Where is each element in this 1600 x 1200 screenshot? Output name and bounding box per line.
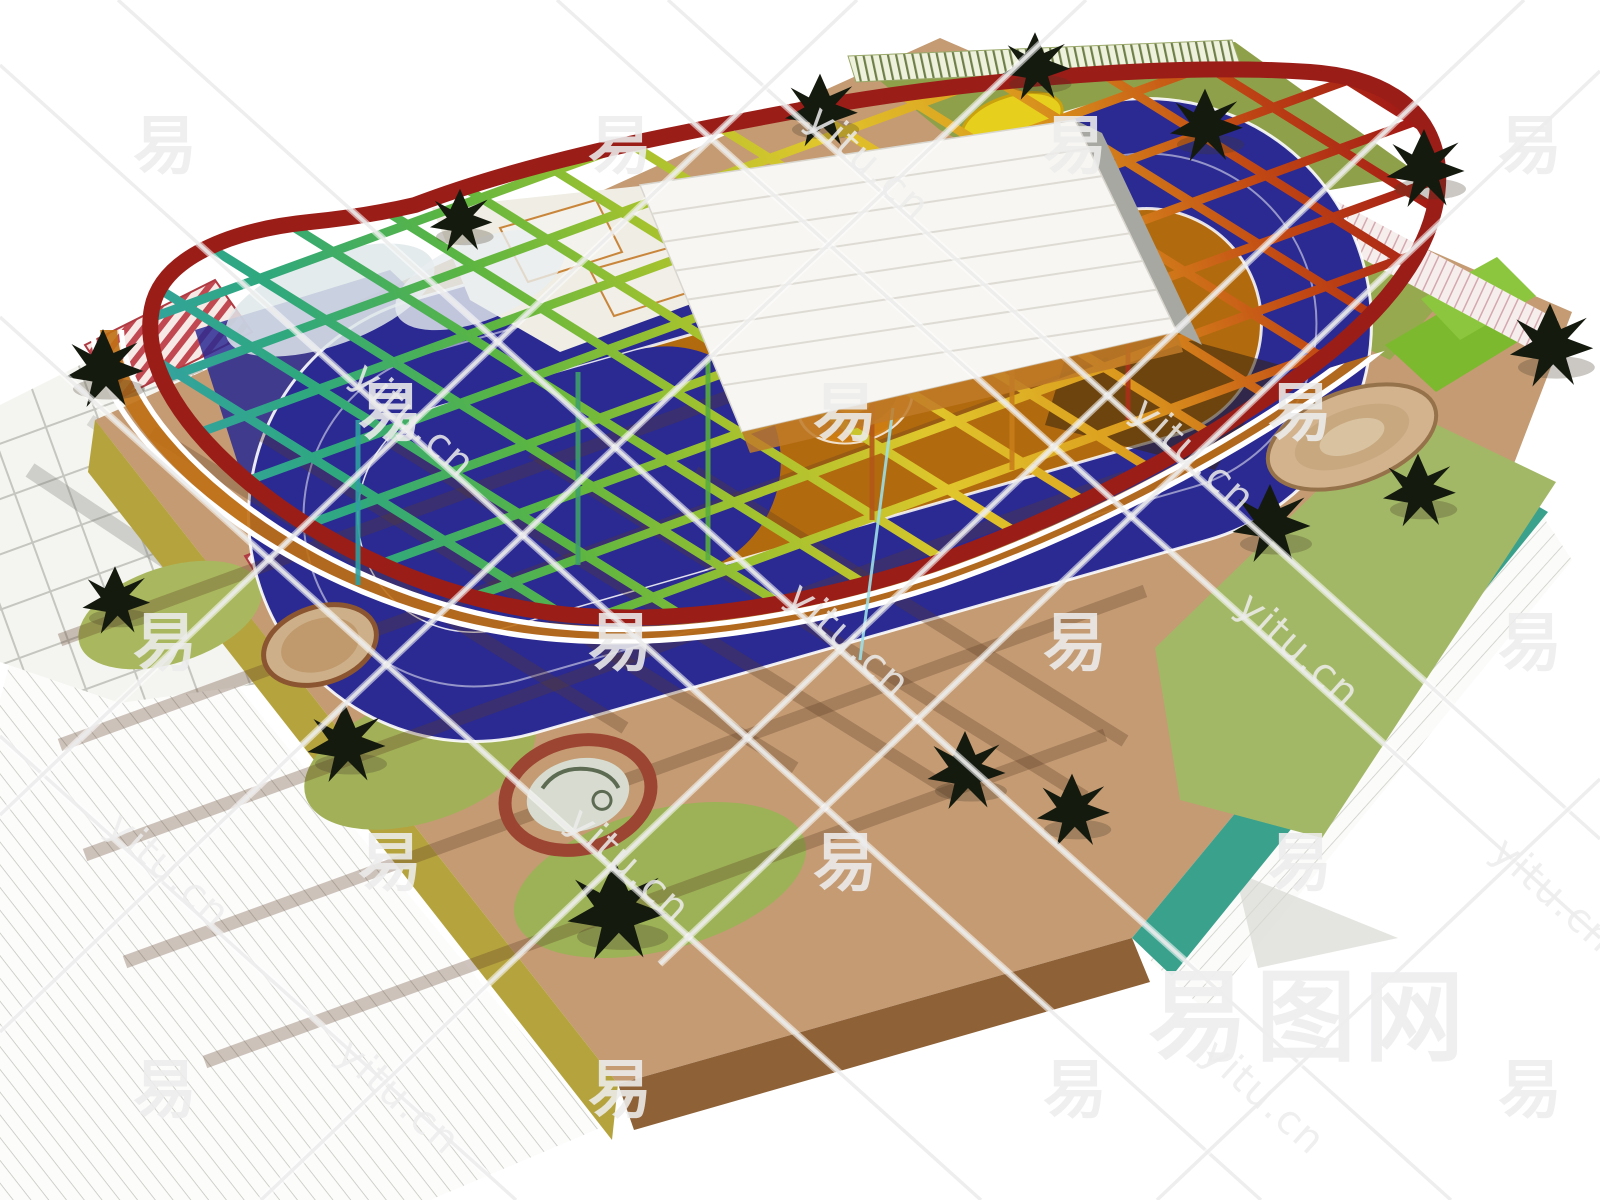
render-canvas: 易图网 易易易易易易易易易易易易易易易易易易yitu.cnyitu.cnyitu…	[0, 0, 1600, 1200]
watermark-char: 易	[1043, 110, 1107, 184]
watermark-char: 易	[813, 827, 877, 901]
watermark-char: 易	[1498, 607, 1562, 681]
watermark-char: 易	[1043, 607, 1107, 681]
watermark-char: 易	[133, 1054, 197, 1128]
watermark-char: 易	[1498, 110, 1562, 184]
architectural-render: 易图网 易易易易易易易易易易易易易易易易易易yitu.cnyitu.cnyitu…	[0, 0, 1600, 1200]
watermark-char: 易	[1268, 827, 1332, 901]
watermark-char: 易	[588, 110, 652, 184]
watermark-char: 易	[133, 607, 197, 681]
watermark-char: 易	[358, 827, 422, 901]
watermark-char: 易	[133, 110, 197, 184]
watermark-char: 易	[588, 1054, 652, 1128]
watermark-char: 易	[1268, 377, 1332, 451]
watermark-char: 易	[588, 607, 652, 681]
watermark-char: 易	[1498, 1054, 1562, 1128]
watermark-char: 易	[813, 377, 877, 451]
watermark-char: 易	[1043, 1054, 1107, 1128]
